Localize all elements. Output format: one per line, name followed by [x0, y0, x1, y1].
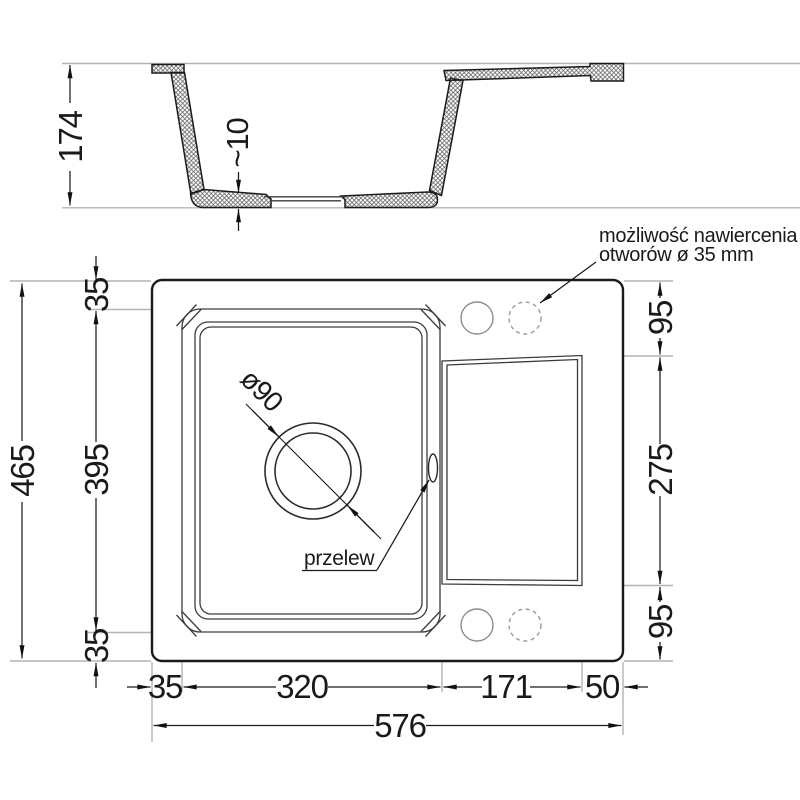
dim-label-275: 275 — [642, 444, 679, 495]
sink-outer-edge — [152, 280, 623, 661]
dim-label-95-bottom: 95 — [642, 605, 679, 639]
section-wall-right — [430, 78, 464, 196]
dimension-rim-left: 35 — [127, 668, 182, 705]
dimension-rim-bottom: 35 — [78, 629, 115, 688]
dim-label-395: 395 — [78, 444, 115, 495]
dim-label-320: 320 — [276, 668, 328, 705]
technical-drawing-sink: 174 ~10 — [0, 0, 800, 800]
dim-label-35-bottom: 35 — [78, 629, 115, 663]
dim-label-10: ~10 — [220, 118, 255, 168]
drill-note-line2: otworów ø 35 mm — [599, 244, 753, 266]
dimension-total-height: 465 — [4, 284, 41, 659]
dim-label-576: 576 — [374, 707, 425, 744]
dim-label-171: 171 — [480, 668, 531, 705]
section-wall-left — [171, 73, 204, 195]
section-drainboard-deck — [444, 64, 624, 82]
dimension-section-depth: 174 — [52, 65, 89, 206]
dimension-bowl-length: 395 — [78, 311, 115, 631]
dimension-bottom-thickness: ~10 — [220, 118, 255, 231]
dimension-right-bottom-95: 95 — [642, 587, 679, 660]
dim-label-174: 174 — [52, 110, 89, 162]
drawing-canvas: 174 ~10 — [0, 0, 800, 800]
dimension-bowl-width: 320 — [184, 668, 441, 705]
dimension-rim-right: 50 — [585, 668, 648, 705]
overflow-label: przelew — [304, 547, 375, 570]
section-rim-left — [152, 65, 184, 74]
cross-section-view: 174 ~10 — [52, 64, 800, 232]
dimension-drainboard-length: 275 — [642, 358, 679, 585]
dim-label-465: 465 — [4, 445, 41, 496]
dimension-right-top-95: 95 — [642, 283, 679, 355]
section-bottom-right — [341, 192, 438, 208]
dimension-total-width: 576 — [154, 707, 622, 744]
dim-label-35-top: 35 — [78, 278, 115, 312]
dim-label-95-top: 95 — [642, 301, 679, 335]
dim-label-35-left: 35 — [148, 668, 182, 705]
dim-label-50: 50 — [585, 668, 620, 705]
plan-view: ø90 przelew możliwość nawiercenia otworó… — [4, 225, 799, 744]
dimension-drainboard-width: 171 — [444, 668, 581, 705]
overflow-slot — [429, 454, 438, 482]
dimension-rim-top: 35 — [78, 256, 115, 312]
section-bottom-left — [191, 190, 272, 208]
